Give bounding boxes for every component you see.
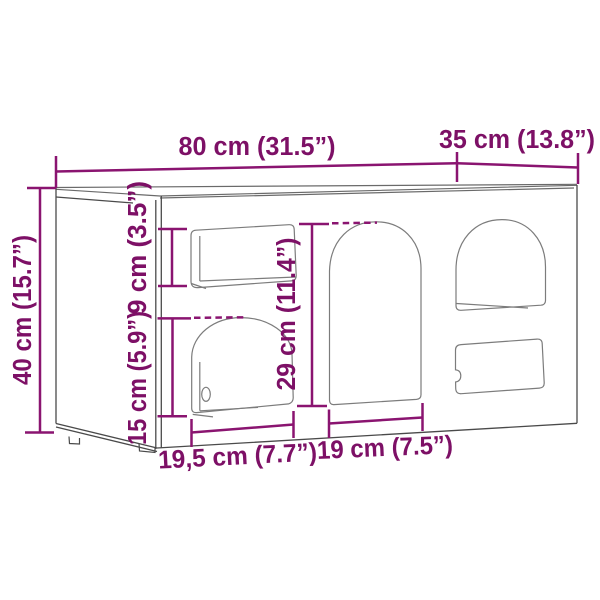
svg-text:29 cm (11.4”): 29 cm (11.4”) [273, 238, 301, 391]
svg-text:80 cm (31.5”): 80 cm (31.5”) [179, 133, 336, 161]
svg-text:9 cm (3.5”): 9 cm (3.5”) [124, 181, 152, 314]
svg-text:15 cm (5.9”): 15 cm (5.9”) [124, 311, 152, 445]
svg-text:35 cm (13.8”): 35 cm (13.8”) [439, 126, 595, 154]
svg-text:19 cm (7.5”): 19 cm (7.5”) [316, 431, 453, 465]
svg-text:40 cm (15.7”): 40 cm (15.7”) [9, 235, 37, 385]
